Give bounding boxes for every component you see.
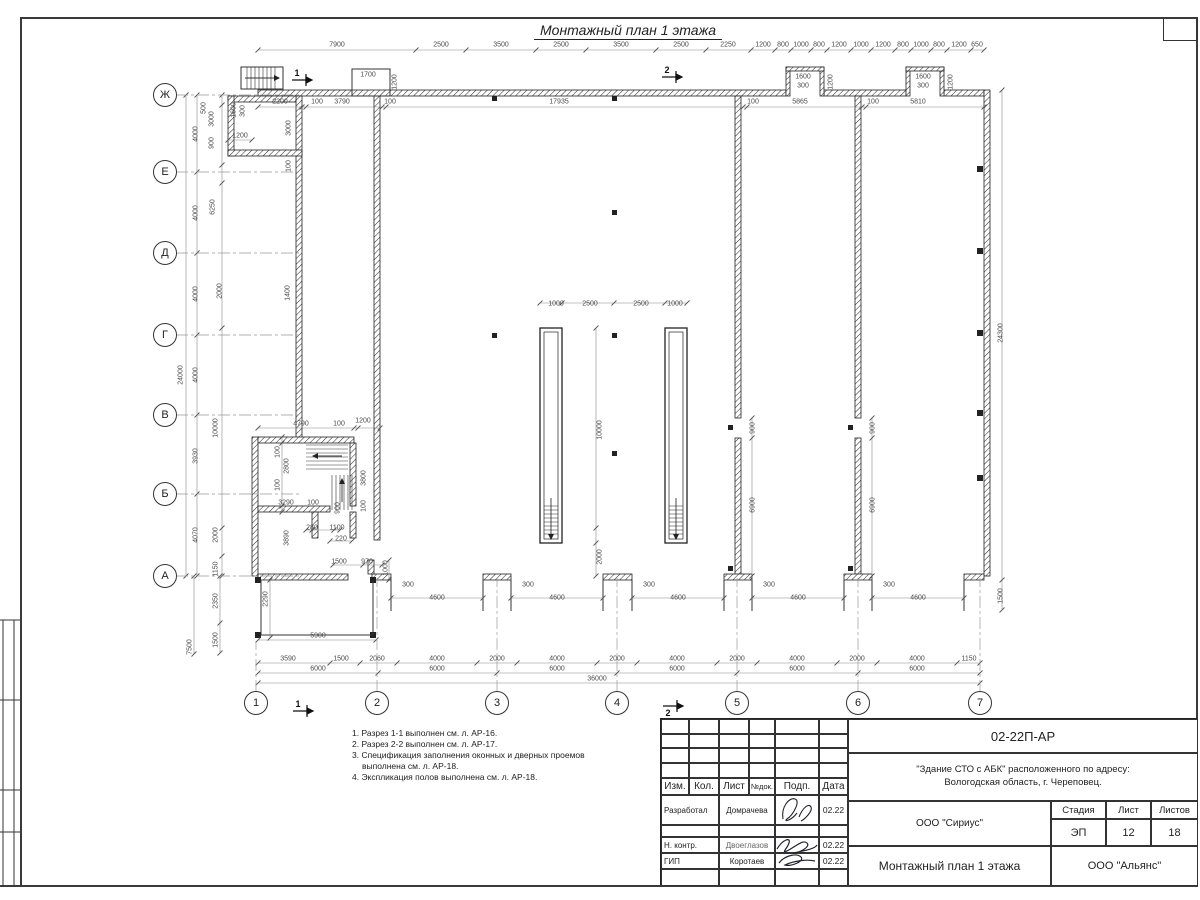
- dim: 1400: [285, 285, 292, 301]
- dim: 500: [201, 102, 208, 114]
- tb-cell: [661, 763, 689, 778]
- dim: 6000: [429, 666, 445, 673]
- dim: 100: [286, 160, 293, 172]
- dim: 5900: [310, 633, 326, 640]
- dim: 3500: [613, 42, 629, 49]
- dim: 100: [311, 99, 323, 106]
- dim: 100: [867, 99, 879, 106]
- dim: 4000: [549, 656, 565, 663]
- axis-bubble-g: Г: [153, 323, 177, 347]
- dim: 1100: [329, 525, 344, 532]
- dim: 4000: [789, 656, 805, 663]
- dim: 4000: [909, 656, 925, 663]
- dim: 2200: [272, 99, 288, 106]
- tb-cell: [661, 748, 689, 763]
- tb-col-list: Лист: [719, 778, 749, 795]
- tb-cell: [689, 763, 719, 778]
- dim: 4600: [790, 595, 806, 602]
- tb-cell: [819, 869, 848, 886]
- dim: 650: [971, 42, 983, 49]
- dim: 3500: [493, 42, 509, 49]
- dim: 5810: [910, 99, 926, 106]
- tb-cell: [819, 825, 848, 837]
- annex-room: [261, 580, 373, 635]
- dim: 3000: [286, 120, 293, 136]
- tb-cell: [775, 869, 819, 886]
- axis-bubble-5: 5: [725, 691, 749, 715]
- dim: 1500: [333, 656, 349, 663]
- dim: 900: [335, 502, 342, 514]
- dim: 6000: [549, 666, 565, 673]
- dim: 2060: [369, 656, 385, 663]
- tb-cell: [719, 719, 749, 734]
- tb-cell: [819, 734, 848, 748]
- dim: 900: [870, 422, 877, 434]
- dim: 1000: [383, 560, 390, 576]
- dim: 300: [883, 582, 895, 589]
- dim: 3890: [284, 530, 291, 546]
- tb-cell: [719, 763, 749, 778]
- dim: 3000: [209, 111, 216, 127]
- dim: 2000: [597, 549, 604, 565]
- tb-cell: [689, 748, 719, 763]
- dim: 800: [777, 42, 789, 49]
- tb-col-data: Дата: [819, 778, 848, 795]
- tb-cell: [749, 734, 775, 748]
- dim: 800: [813, 42, 825, 49]
- dim: 1200: [831, 42, 847, 49]
- dim: 1500: [998, 588, 1005, 604]
- dim: 100: [275, 446, 282, 458]
- tb-list-value: 12: [1106, 819, 1151, 846]
- dim: 5865: [792, 99, 808, 106]
- dim: 10000: [597, 420, 604, 439]
- dim: 2250: [720, 42, 736, 49]
- axis-bubble-e: Е: [153, 160, 177, 184]
- dim: 4000: [193, 367, 200, 383]
- signature-razrabotal: [777, 793, 819, 827]
- dim: 900: [750, 422, 757, 434]
- dim: 6000: [310, 666, 326, 673]
- dim: 6250: [210, 199, 217, 215]
- tb-cell: [775, 734, 819, 748]
- dim: 1200: [875, 42, 891, 49]
- dim: 1200: [828, 74, 835, 90]
- dim: 220: [335, 536, 347, 543]
- dim: 6000: [909, 666, 925, 673]
- dim: 3790: [334, 99, 350, 106]
- tb-cell: [719, 869, 775, 886]
- tb-cell: [819, 719, 848, 734]
- note-line: 3. Спецификация заполнения оконных и две…: [352, 750, 602, 772]
- dim: 1150: [961, 656, 976, 663]
- tb-date-razrabotal: 02.22: [819, 795, 848, 825]
- axis-bubble-a: А: [153, 564, 177, 588]
- dim: 1600: [795, 74, 811, 81]
- dim: 1200: [355, 418, 371, 425]
- axis-bubble-1: 1: [244, 691, 268, 715]
- tb-name-gip: Коротаев: [719, 853, 775, 869]
- dim: 4790: [293, 421, 309, 428]
- axis-bubble-4: 4: [605, 691, 629, 715]
- dim: 1000: [913, 42, 929, 49]
- dim: 280: [306, 525, 318, 532]
- tb-role-gip: ГИП: [661, 853, 719, 869]
- tb-stage-header: Стадия: [1051, 801, 1106, 819]
- note-line: 4. Экспликация полов выполнена см. л. АР…: [352, 772, 602, 783]
- tb-object-line2: Вологодская область, г. Череповец.: [944, 777, 1101, 790]
- dim: 2500: [582, 301, 598, 308]
- exterior-stair: [241, 67, 283, 89]
- dim: 2000: [213, 527, 220, 543]
- tb-col-kol: Кол.: [689, 778, 719, 795]
- dim: 1000: [853, 42, 869, 49]
- axis-bubble-6: 6: [846, 691, 870, 715]
- section-mark-2-bottom: 2: [665, 708, 670, 718]
- dim: 4600: [429, 595, 445, 602]
- dim: 300: [402, 582, 414, 589]
- dim: 100: [747, 99, 759, 106]
- dim: 800: [897, 42, 909, 49]
- tb-cell: [661, 825, 719, 837]
- dim: 300: [522, 582, 534, 589]
- dim: 100: [361, 500, 368, 512]
- dim: 6900: [870, 497, 877, 513]
- dim: 3800: [361, 470, 368, 486]
- tb-cell: [719, 825, 775, 837]
- columns: [255, 96, 983, 638]
- dim: 2500: [633, 301, 649, 308]
- signature-ncontr-gip: [773, 835, 821, 871]
- dim: 300: [643, 582, 655, 589]
- tb-stage-value: ЭП: [1051, 819, 1106, 846]
- dim: 4000: [193, 286, 200, 302]
- tb-name-ncontr: Двоеглазов: [719, 837, 775, 853]
- section-marks: [292, 71, 683, 717]
- dim: 1000: [667, 301, 683, 308]
- tb-role-ncontr: Н. контр.: [661, 837, 719, 853]
- dim: 6900: [750, 497, 757, 513]
- note-line: 2. Разрез 2-2 выполнен см. л. АР-17.: [352, 739, 602, 750]
- dim: 1700: [360, 72, 376, 79]
- dim: 3930: [193, 448, 200, 464]
- dim: 7500: [187, 639, 194, 655]
- section-mark-1-top: 1: [294, 68, 299, 78]
- tb-cell: [661, 869, 719, 886]
- dim: 1000: [793, 42, 809, 49]
- tb-date-ncontr: 02.22: [819, 837, 848, 853]
- tb-cell: [775, 719, 819, 734]
- tb-cell: [775, 763, 819, 778]
- dim: 800: [933, 42, 945, 49]
- notes-block: 1. Разрез 1-1 выполнен см. л. АР-16. 2. …: [352, 728, 602, 783]
- tb-col-izm: Изм.: [661, 778, 689, 795]
- dim: 3590: [280, 656, 296, 663]
- tb-org: ООО "Сириус": [848, 801, 1051, 846]
- dim: 3290: [278, 500, 294, 507]
- dim: 4000: [669, 656, 685, 663]
- dim: 1200: [232, 133, 248, 140]
- dim: 1150: [213, 561, 220, 576]
- section-mark-1-bottom: 1: [295, 699, 300, 709]
- tb-cell: [661, 719, 689, 734]
- dim: 1600: [231, 102, 238, 118]
- dim: 10000: [213, 418, 220, 437]
- axis-bubble-v: В: [153, 403, 177, 427]
- tb-object: "Здание СТО с АБК" расположенного по адр…: [848, 753, 1198, 801]
- axis-bubble-g7: Ж: [153, 83, 177, 107]
- tb-date-gip: 02.22: [819, 853, 848, 869]
- dim: 2000: [217, 283, 224, 299]
- tb-cell: [819, 748, 848, 763]
- tb-doc-code: 02-22П-АР: [848, 719, 1198, 753]
- dim: 300: [763, 582, 775, 589]
- tb-role-razrabotal: Разработал: [661, 795, 719, 825]
- dim: 17935: [549, 99, 568, 106]
- dim: 2290: [263, 591, 270, 607]
- tb-cell: [819, 763, 848, 778]
- dim: 1200: [755, 42, 771, 49]
- dim: 6000: [669, 666, 685, 673]
- dim: 2000: [729, 656, 745, 663]
- dim: 2500: [553, 42, 569, 49]
- tb-cell: [749, 748, 775, 763]
- tb-cell: [749, 719, 775, 734]
- axis-bubble-b: Б: [153, 482, 177, 506]
- axis-bubble-d: Д: [153, 241, 177, 265]
- tb-cell: [719, 734, 749, 748]
- tb-listov-header: Листов: [1151, 801, 1198, 819]
- dim: 2000: [489, 656, 505, 663]
- tb-listov-value: 18: [1151, 819, 1198, 846]
- dim: 4070: [193, 527, 200, 543]
- dim: 300: [917, 83, 929, 90]
- dim: 2000: [849, 656, 865, 663]
- dim: 6000: [789, 666, 805, 673]
- tb-cell: [719, 748, 749, 763]
- axis-bubble-7: 7: [968, 691, 992, 715]
- dim: 24000: [178, 365, 185, 384]
- dim: 7900: [329, 42, 345, 49]
- dim: 2500: [673, 42, 689, 49]
- dim: 1200: [951, 42, 967, 49]
- dim: 1000: [548, 301, 564, 308]
- dim: 300: [797, 83, 809, 90]
- dim: 2500: [433, 42, 449, 49]
- dim: 1200: [392, 74, 399, 90]
- tb-cell: [661, 734, 689, 748]
- dim: 1500: [331, 559, 347, 566]
- note-line: 1. Разрез 1-1 выполнен см. л. АР-16.: [352, 728, 602, 739]
- tb-object-line1: "Здание СТО с АБК" расположенного по адр…: [916, 764, 1129, 777]
- page-title: Монтажный план 1 этажа: [534, 22, 722, 40]
- dim: 970: [361, 559, 373, 566]
- axis-bubble-3: 3: [485, 691, 509, 715]
- dim: 100: [307, 500, 319, 507]
- tb-list-header: Лист: [1106, 801, 1151, 819]
- tb-name-razrabotal: Домрачева: [719, 795, 775, 825]
- dim: 24300: [998, 323, 1005, 342]
- tb-cell: [775, 748, 819, 763]
- dim: 300: [240, 105, 247, 117]
- dim: 4600: [670, 595, 686, 602]
- dim: 2800: [284, 458, 291, 474]
- section-mark-2-top: 2: [664, 65, 669, 75]
- dim: 4600: [549, 595, 565, 602]
- dim: 1500: [213, 632, 220, 648]
- dim: 100: [384, 99, 396, 106]
- axis-bubble-2: 2: [365, 691, 389, 715]
- dim: 100: [333, 421, 345, 428]
- drawing-sheet: { "sheet": { "title": "Монтажный план 1 …: [0, 0, 1200, 900]
- dim: 4000: [193, 205, 200, 221]
- tb-cell: [749, 763, 775, 778]
- dim: 2350: [213, 593, 220, 609]
- dim: 1600: [915, 74, 931, 81]
- tb-col-ndoc: №док.: [749, 778, 775, 795]
- tb-cell: [689, 719, 719, 734]
- montage-pits: [540, 328, 687, 543]
- tb-firm: ООО "Альянс": [1051, 846, 1198, 886]
- tb-cell: [689, 734, 719, 748]
- dim: 4600: [910, 595, 926, 602]
- dim: 900: [209, 137, 216, 149]
- dim: 1200: [948, 74, 955, 90]
- dim: 36000: [587, 676, 606, 683]
- tb-drawing-name: Монтажный план 1 этажа: [848, 846, 1051, 886]
- dim: 4000: [429, 656, 445, 663]
- title-block: Изм. Кол. Лист №док. Подп. Дата Разработ…: [660, 718, 1197, 885]
- dim: 4000: [193, 126, 200, 142]
- dim: 100: [275, 479, 282, 491]
- dim: 2000: [609, 656, 625, 663]
